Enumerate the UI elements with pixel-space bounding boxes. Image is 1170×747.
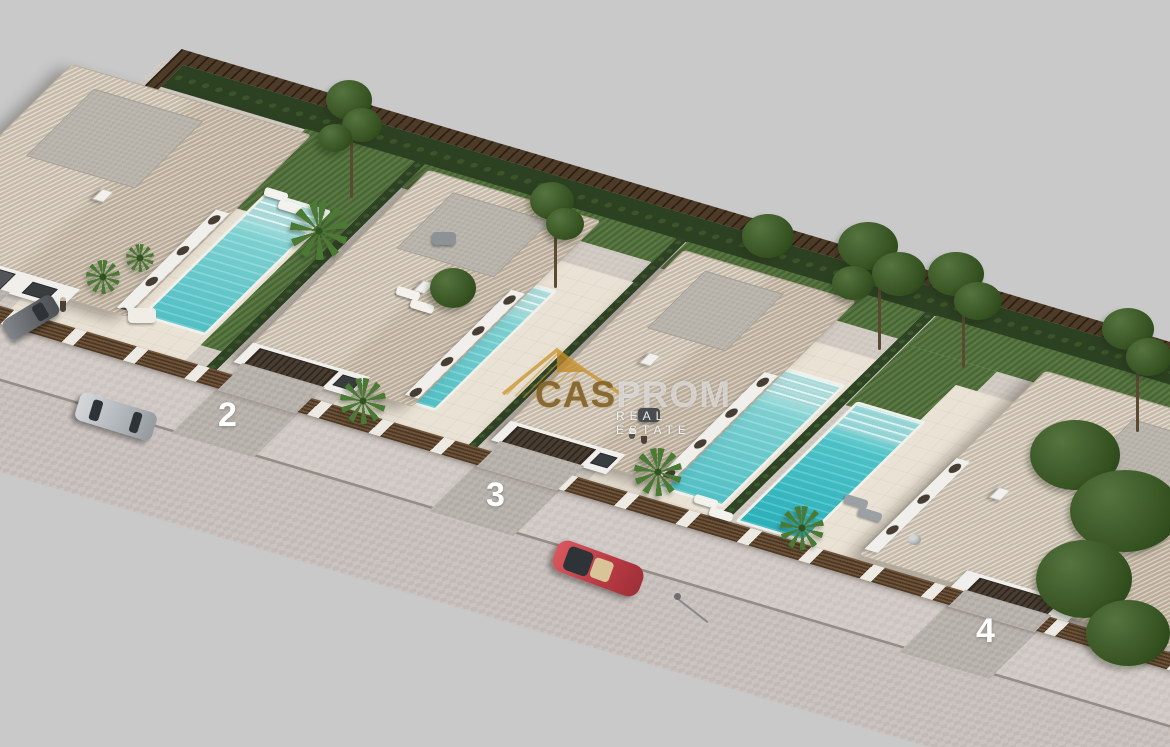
pine-tree [524, 182, 590, 290]
pine-tree [1098, 308, 1170, 434]
pine-tree [318, 80, 388, 200]
outdoor-sofa [128, 308, 156, 323]
pine-tree [832, 222, 932, 352]
palm-tree [780, 506, 824, 550]
street-lamp-head [674, 593, 681, 600]
satellite-dish [908, 534, 921, 545]
palm-tree [634, 448, 682, 496]
person-figure [60, 297, 66, 312]
tree [430, 268, 478, 316]
palm-tree [290, 202, 348, 260]
person-figure [629, 424, 635, 439]
palm-tree [86, 260, 120, 294]
plot-marker-2: 2 [218, 396, 237, 435]
tree [742, 214, 794, 268]
plot-marker-4: 4 [976, 612, 995, 651]
person-figure [641, 432, 647, 444]
pine-tree [918, 252, 1010, 370]
outdoor-sofa [638, 408, 660, 422]
tree-cluster [1020, 420, 1170, 680]
render-canvas: 2 3 4 CASPROM REAL ESTATE [0, 0, 1170, 747]
outdoor-sofa [432, 232, 456, 245]
palm-tree [340, 378, 386, 424]
plot-marker-3: 3 [486, 476, 505, 515]
palm-tree [126, 244, 154, 272]
